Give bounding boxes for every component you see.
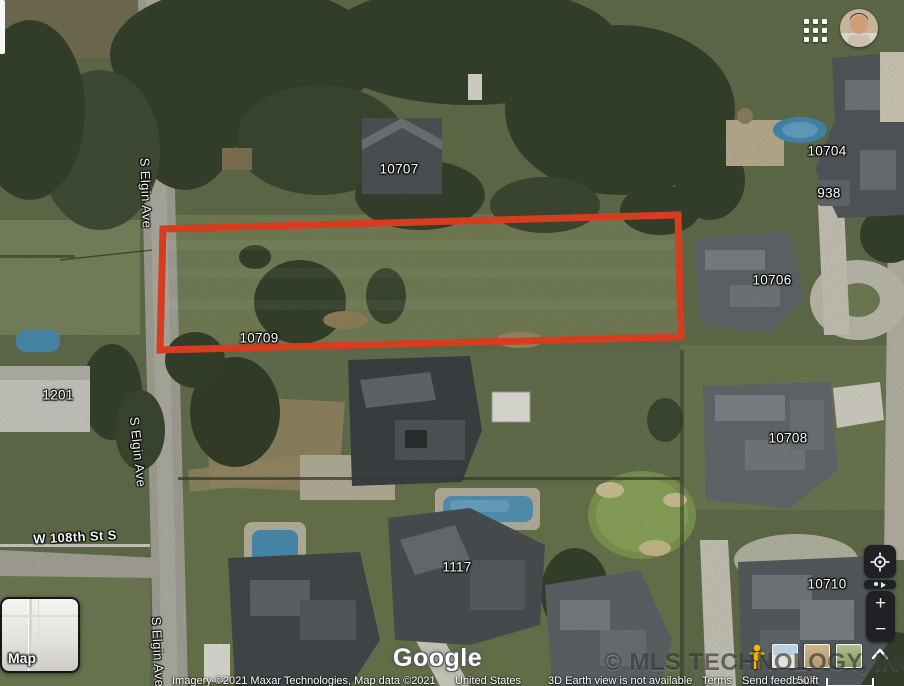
satellite-imagery — [0, 0, 904, 686]
google-watermark: Google — [393, 644, 482, 673]
attribution-bar: Imagery ©2021 Maxar Technologies, Map da… — [0, 675, 904, 686]
earth-view-notice: 3D Earth view is not available — [548, 675, 692, 686]
attribution-country: United States — [455, 675, 521, 686]
parcel-label-938: 938 — [817, 186, 840, 201]
scale-label: 50 ft — [797, 675, 818, 686]
avatar-image — [840, 9, 878, 47]
pegman-dock[interactable] — [864, 580, 896, 589]
zoom-out-button[interactable]: − — [866, 617, 895, 643]
parcel-label-10704: 10704 — [807, 144, 846, 159]
zoom-control: + − — [866, 591, 895, 642]
map-type-toggle[interactable]: Map — [0, 597, 80, 673]
parcel-label-10710: 10710 — [807, 577, 846, 592]
terms-link[interactable]: Terms — [702, 675, 732, 686]
parcel-label-10707: 10707 — [379, 162, 418, 177]
map-toggle-label: Map — [8, 650, 36, 666]
inset-road-line — [2, 615, 78, 617]
mls-watermark: © MLS TECHNOLOGY, INC 2025 — [604, 649, 904, 677]
account-avatar[interactable] — [840, 9, 878, 47]
panel-edge-sliver — [0, 0, 5, 54]
map-canvas[interactable]: 10707 10704 938 10706 10709 1201 10708 1… — [0, 0, 904, 686]
parcel-label-10708: 10708 — [768, 431, 807, 446]
my-location-crosshair-icon — [870, 552, 890, 572]
parcel-label-10706: 10706 — [752, 273, 791, 288]
zoom-in-button[interactable]: + — [866, 591, 895, 617]
parcel-label-1201: 1201 — [42, 388, 73, 403]
parcel-label-1117: 1117 — [442, 560, 471, 575]
parcel-label-10709: 10709 — [239, 331, 278, 346]
street-view-pegman-icon — [871, 581, 889, 589]
inset-road-line — [38, 599, 39, 671]
google-apps-grid-icon[interactable] — [804, 19, 827, 42]
street-label-s-elgin-ave-1: S Elgin Ave — [137, 157, 154, 228]
imagery-credits: Imagery ©2021 Maxar Technologies, Map da… — [172, 675, 436, 686]
my-location-button[interactable] — [864, 545, 896, 578]
scale-bar — [826, 678, 874, 686]
